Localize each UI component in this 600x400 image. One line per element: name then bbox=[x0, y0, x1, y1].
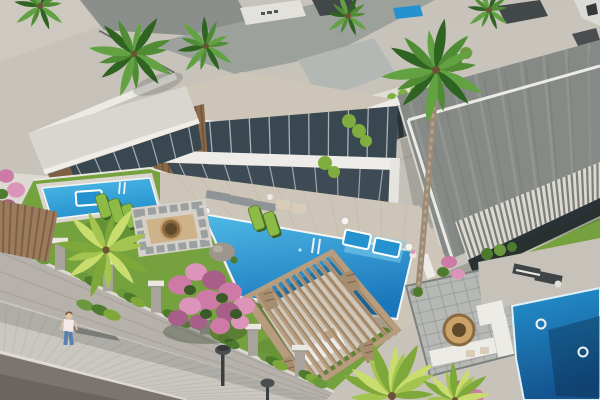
wall-pillar bbox=[248, 329, 258, 356]
palm-crown-center bbox=[203, 43, 209, 49]
lamp-pole bbox=[221, 352, 225, 386]
pillar-cap bbox=[148, 281, 164, 287]
shrub bbox=[481, 248, 493, 260]
flower-bush bbox=[441, 256, 457, 268]
flower-bush bbox=[451, 269, 465, 279]
lamp-dome bbox=[217, 345, 229, 351]
flower-cluster bbox=[210, 318, 230, 334]
ball-light bbox=[405, 243, 413, 251]
water-sparkle bbox=[298, 248, 301, 251]
palm-base-plant bbox=[413, 287, 423, 297]
ball-light bbox=[341, 217, 349, 225]
pillow bbox=[480, 347, 489, 354]
palm-crown-center bbox=[388, 392, 396, 400]
rock-highlight bbox=[213, 246, 223, 253]
pool-ladder bbox=[119, 182, 120, 194]
pool-ladder bbox=[124, 182, 125, 194]
pool-plant bbox=[231, 257, 238, 264]
fire-bowl bbox=[452, 323, 466, 337]
street-lamp bbox=[261, 379, 275, 388]
palm-crown-center bbox=[432, 66, 440, 74]
wall-pillar bbox=[151, 286, 161, 313]
palm-crown-center bbox=[486, 7, 492, 13]
topiary-ball bbox=[360, 135, 372, 147]
sign-mark bbox=[274, 10, 278, 13]
shrub bbox=[494, 244, 506, 256]
leaf-gap bbox=[230, 309, 242, 319]
architectural-render bbox=[0, 0, 600, 400]
side-table bbox=[267, 194, 273, 200]
sign-mark bbox=[261, 12, 265, 15]
pink-drink bbox=[411, 250, 415, 254]
palm-crown-center bbox=[37, 3, 43, 9]
palm-crown-center bbox=[131, 51, 137, 57]
shrub bbox=[507, 242, 517, 252]
side-table bbox=[555, 281, 562, 288]
flower-cluster bbox=[168, 310, 188, 326]
palm-shadow-on-water bbox=[548, 316, 600, 398]
topiary-ball bbox=[328, 166, 340, 178]
shrub bbox=[437, 267, 449, 277]
flower-cluster bbox=[7, 182, 25, 197]
palm-crown-center bbox=[345, 13, 351, 19]
leaf-gap bbox=[200, 309, 212, 319]
topiary-ball bbox=[342, 114, 356, 128]
pillow bbox=[466, 350, 475, 357]
pedestrian-torso bbox=[63, 319, 74, 332]
palm-crown-center bbox=[102, 246, 109, 253]
pillar-cap bbox=[292, 345, 308, 351]
leaf-gap bbox=[184, 285, 196, 295]
villa-complex-scene bbox=[0, 0, 600, 400]
leaf-gap bbox=[216, 293, 228, 303]
fire-pit-center bbox=[165, 223, 177, 235]
sign-mark bbox=[267, 11, 272, 14]
